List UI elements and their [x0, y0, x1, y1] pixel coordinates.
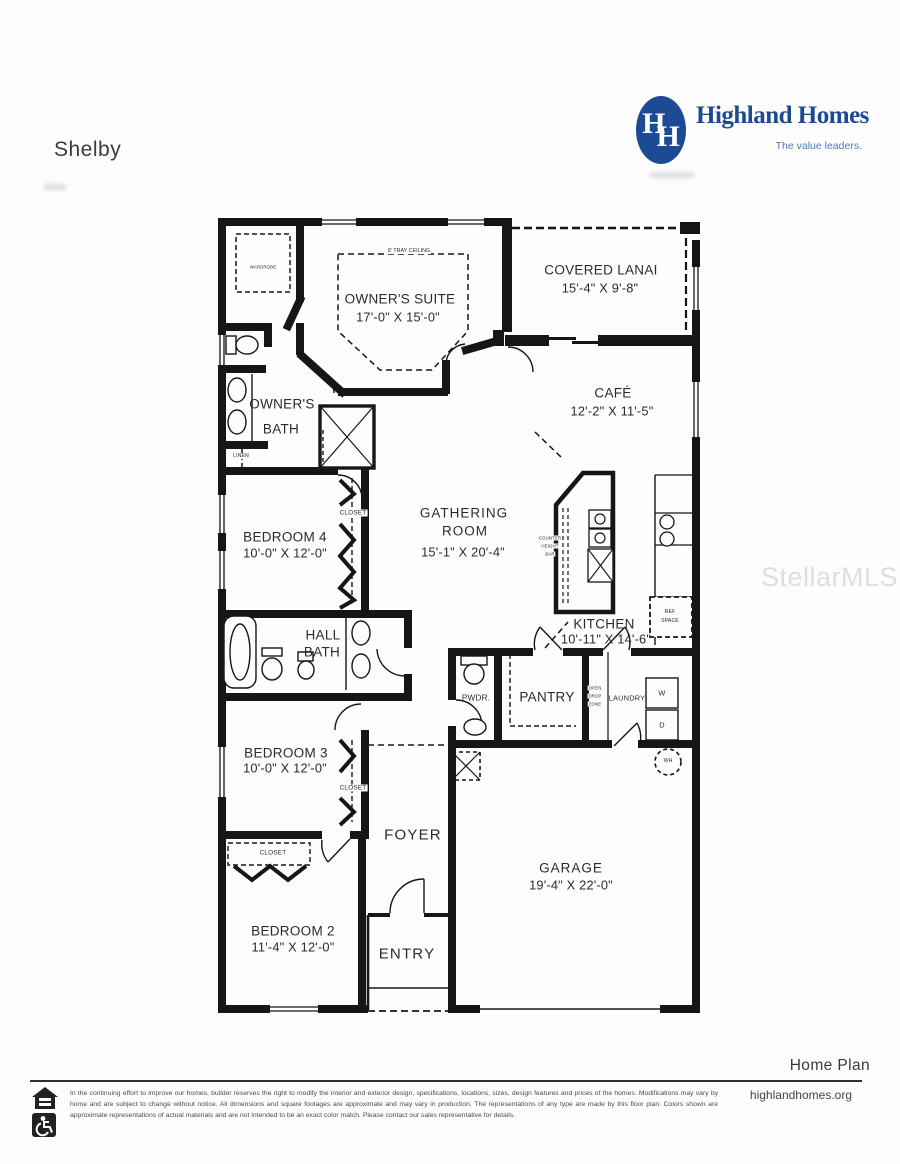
room-label-bedroom3: BEDROOM 3	[244, 746, 328, 761]
drop-zone-label-3: ZONE	[588, 702, 603, 707]
closet-label-bedroom2: CLOSET	[259, 850, 288, 857]
counter-bar-label-2: HEIGHT	[540, 544, 559, 549]
room-label-hall-bath-2: BATH	[304, 645, 340, 660]
linen-label: LINEN	[232, 453, 250, 459]
room-label-owners-suite: OWNER'S SUITE	[345, 292, 456, 307]
room-dims-kitchen: 10'-11" X 14'-6"	[561, 632, 651, 647]
footer-icons	[32, 1087, 62, 1141]
room-label-bedroom2: BEDROOM 2	[251, 924, 335, 939]
room-label-pwdr: PWDR.	[462, 694, 490, 703]
footer-home-plan: Home Plan	[790, 1057, 870, 1075]
footer-disclaimer: In the continuing effort to improve our …	[70, 1089, 718, 1122]
dryer-label: D	[659, 721, 665, 730]
washer-label: W	[658, 689, 665, 698]
accessibility-icon	[32, 1113, 56, 1137]
room-dims-bedroom3: 10'-0" X 12'-0"	[243, 761, 327, 776]
closet-label-bedroom3: CLOSET	[339, 785, 368, 792]
tray-ceiling-note: 8' TRAY CEILING	[387, 248, 431, 254]
room-dims-gathering: 15'-1" X 20'-4"	[421, 545, 505, 560]
room-label-gathering-1: GATHERING	[420, 506, 508, 521]
room-label-kitchen: KITCHEN	[573, 617, 634, 632]
room-dims-garage: 19'-4" X 22'-0"	[529, 878, 613, 893]
footer-website: highlandhomes.org	[750, 1088, 852, 1102]
garage-fixtures	[452, 749, 681, 780]
ref-space-label-2: SPACE	[660, 618, 680, 624]
room-label-covered-lanai: COVERED LANAI	[544, 263, 657, 278]
footer-divider	[30, 1080, 862, 1082]
room-label-hall-bath-1: HALL	[306, 628, 341, 643]
counter-bar-label-1: COUNTER	[538, 536, 562, 541]
equal-housing-icon	[32, 1087, 58, 1109]
room-label-foyer: FOYER	[384, 827, 442, 844]
room-label-garage: GARAGE	[539, 861, 603, 876]
floor-plan-drawing	[0, 0, 900, 1164]
room-label-bedroom4: BEDROOM 4	[243, 530, 327, 545]
floor-plan-page: Shelby H H Highland Homes The value lead…	[0, 0, 900, 1164]
room-label-laundry: LAUNDRY	[609, 694, 646, 703]
room-dims-covered-lanai: 15'-4" X 9'-8"	[562, 281, 639, 296]
room-label-owners-bath-1: OWNER'S	[249, 397, 314, 412]
room-label-cafe: CAFÉ	[594, 386, 631, 401]
room-dims-bedroom4: 10'-0" X 12'-0"	[243, 546, 327, 561]
room-dims-bedroom2: 11'-4" X 12'-0"	[252, 940, 335, 955]
room-dims-cafe: 12'-2" X 11'-5"	[571, 404, 654, 419]
room-label-entry: ENTRY	[379, 946, 436, 963]
room-label-gathering-2: ROOM	[442, 524, 488, 539]
room-label-pantry: PANTRY	[519, 690, 574, 705]
wardrobe-label: WARDROBE	[249, 265, 278, 270]
drop-zone-label-2: DROP	[587, 694, 602, 699]
ref-space-label-1: REF	[664, 609, 677, 615]
entry-walls	[368, 915, 448, 1011]
interior-walls	[218, 218, 700, 1013]
room-label-owners-bath-2: BATH	[263, 422, 299, 437]
water-heater-label: WH	[663, 758, 674, 764]
drop-zone-label-1: OPEN	[588, 686, 603, 691]
room-dims-owners-suite: 17'-0" X 15'-0"	[356, 310, 440, 325]
counter-bar-label-3: BAR	[544, 552, 555, 557]
closet-label-bedroom4: CLOSET	[339, 510, 368, 517]
